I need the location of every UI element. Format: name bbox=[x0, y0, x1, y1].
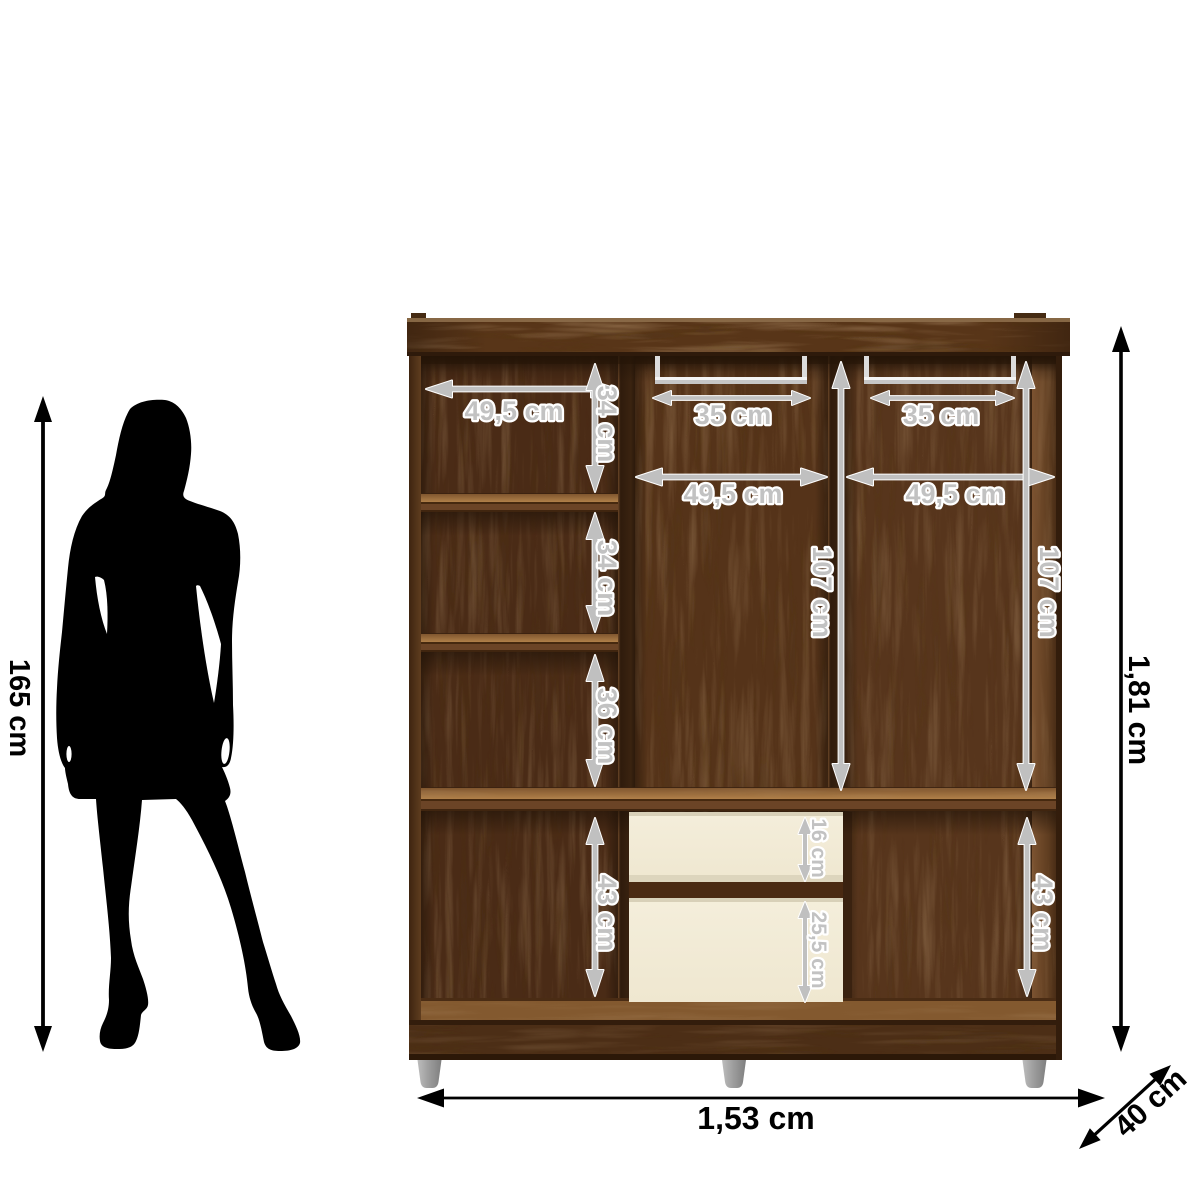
svg-text:36 cm: 36 cm bbox=[592, 688, 622, 765]
svg-text:35 cm: 35 cm bbox=[903, 400, 980, 430]
svg-text:25,5 cm: 25,5 cm bbox=[807, 911, 830, 988]
svg-text:16 cm: 16 cm bbox=[807, 818, 830, 878]
svg-text:34 cm: 34 cm bbox=[592, 540, 622, 617]
svg-text:43 cm: 43 cm bbox=[592, 875, 622, 952]
svg-text:165 cm: 165 cm bbox=[3, 659, 35, 757]
svg-text:1,53 cm: 1,53 cm bbox=[697, 1100, 814, 1136]
svg-text:49,5 cm: 49,5 cm bbox=[683, 479, 782, 509]
svg-text:49,5 cm: 49,5 cm bbox=[905, 479, 1004, 509]
svg-text:107 cm: 107 cm bbox=[1034, 546, 1064, 638]
svg-text:1,81 cm: 1,81 cm bbox=[1122, 655, 1155, 765]
svg-text:43 cm: 43 cm bbox=[1028, 875, 1058, 952]
svg-text:34 cm: 34 cm bbox=[592, 386, 622, 463]
svg-text:49,5 cm: 49,5 cm bbox=[464, 396, 563, 426]
svg-text:35 cm: 35 cm bbox=[695, 400, 772, 430]
svg-text:107 cm: 107 cm bbox=[807, 546, 837, 638]
